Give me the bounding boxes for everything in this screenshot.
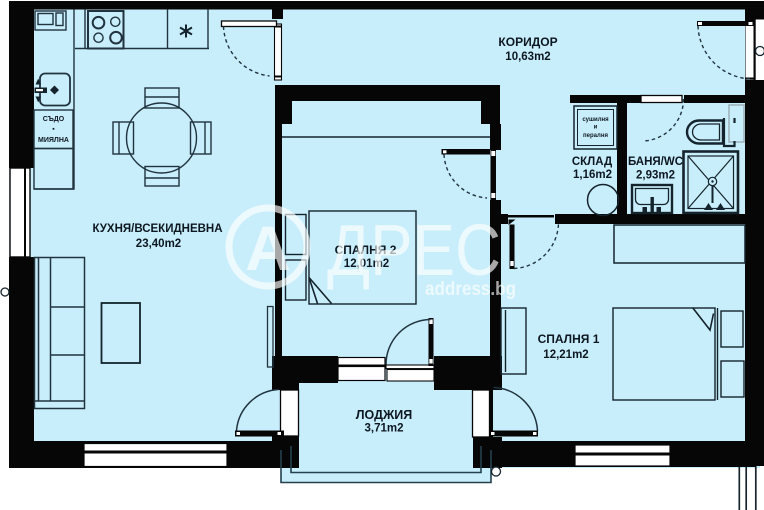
svg-text:пералня: пералня: [583, 133, 608, 139]
svg-text:12,21m2: 12,21m2: [543, 349, 588, 361]
svg-text:2,93m2: 2,93m2: [636, 170, 675, 182]
svg-text:КОРИДОР: КОРИДОР: [498, 35, 557, 49]
svg-text:А: А: [245, 214, 291, 284]
svg-text:10,63m2: 10,63m2: [505, 51, 550, 63]
svg-text:ЛОДЖИЯ: ЛОДЖИЯ: [356, 408, 413, 422]
svg-text:сушилня: сушилня: [582, 117, 609, 123]
svg-text:КУХНЯ/ВСЕКИДНЕВНА: КУХНЯ/ВСЕКИДНЕВНА: [92, 223, 222, 235]
svg-text:23,40m2: 23,40m2: [136, 238, 181, 250]
svg-text:СПАЛНЯ 1: СПАЛНЯ 1: [538, 332, 600, 346]
svg-text:address.bg: address.bg: [425, 279, 516, 300]
svg-text:БАНЯ/WC: БАНЯ/WC: [628, 156, 683, 168]
svg-text:МИЯЛНА: МИЯЛНА: [38, 137, 69, 144]
svg-text:3,71m2: 3,71m2: [364, 423, 403, 435]
svg-text:1,16m2: 1,16m2: [573, 169, 612, 181]
svg-text:СКЛАД: СКЛАД: [572, 156, 612, 168]
svg-text:СЪДО: СЪДО: [43, 116, 65, 123]
svg-text:и: и: [594, 125, 598, 131]
